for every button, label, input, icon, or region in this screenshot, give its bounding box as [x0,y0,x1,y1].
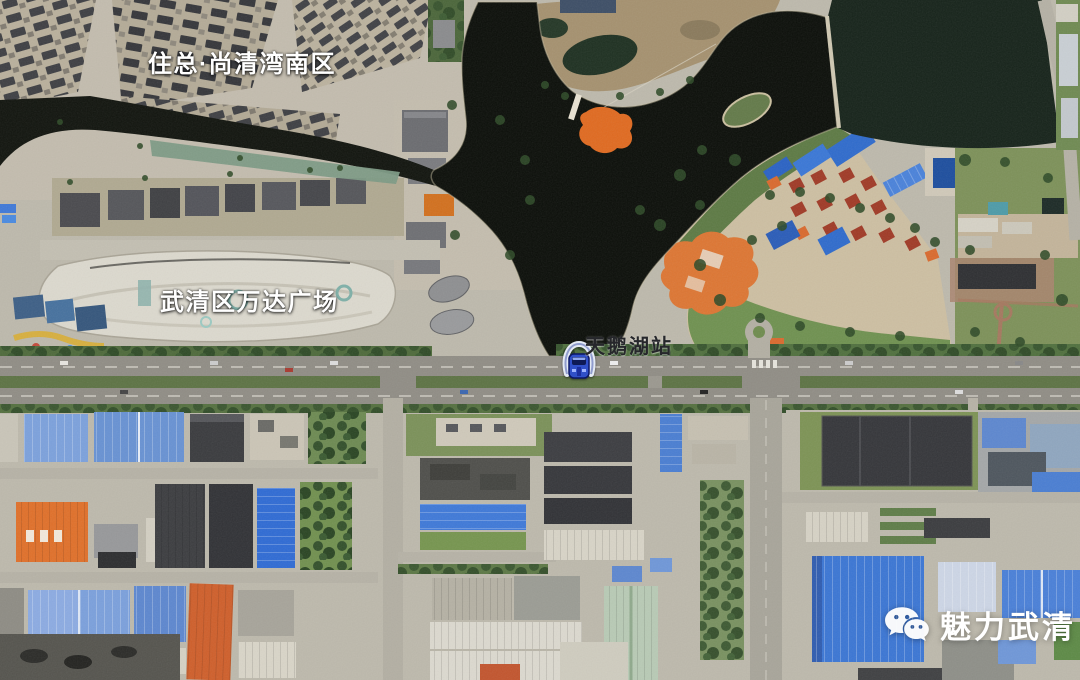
grain-overlay [0,0,1080,680]
watermark-text: 魅力武清 [940,602,1076,647]
label-wanda-plaza: 武清区万达广场 [160,282,339,317]
satellite-map-image: 住总·尚清湾南区 武清区万达广场 天鹅湖站 魅力武清 [0,0,1080,680]
satellite-imagery [0,0,1080,680]
label-residential-area: 住总·尚清湾南区 [148,44,336,79]
label-swan-lake-station: 天鹅湖站 [585,330,673,359]
watermark: 魅力武清 [884,602,1076,647]
wechat-icon [884,605,932,645]
